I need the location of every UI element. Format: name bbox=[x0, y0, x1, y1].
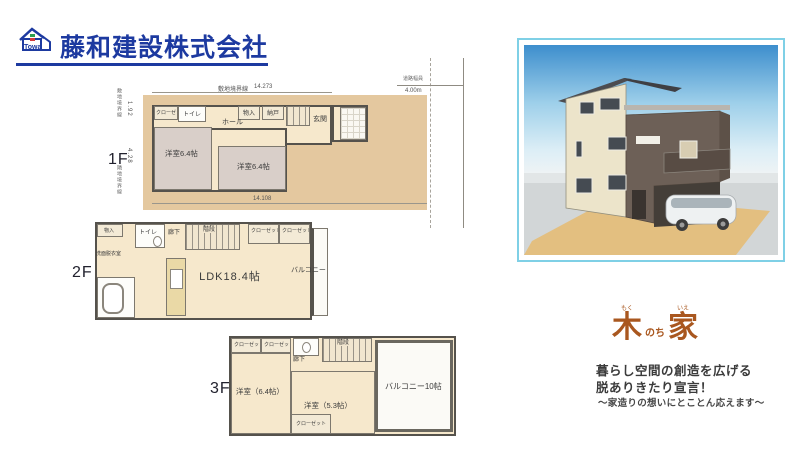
front-door bbox=[632, 190, 646, 219]
van-hub-rear bbox=[721, 222, 726, 227]
boundary-left-bottom: 隣地境界線 bbox=[116, 165, 121, 195]
brand-kanji-left: 木 bbox=[612, 311, 642, 344]
toilet-1f-label: トイレ bbox=[183, 112, 201, 118]
toilet-1f: トイレ bbox=[178, 106, 206, 122]
dim-bottom-line bbox=[152, 203, 427, 204]
balcony-2f-label: バルコニー bbox=[291, 267, 326, 274]
kitchen-counter bbox=[166, 258, 186, 316]
stairs-2f-label: 階段 bbox=[202, 227, 216, 233]
bathroom-2f bbox=[97, 277, 135, 318]
window-2f bbox=[608, 137, 626, 150]
van-windows bbox=[671, 198, 732, 208]
bedroom-3f-left-label: 洋室（6.4帖） bbox=[236, 388, 284, 396]
hall-label: ホール bbox=[222, 119, 243, 126]
exterior-render-frame bbox=[517, 38, 785, 262]
bedroom-1f-left: 洋室6.4帖 bbox=[154, 127, 212, 190]
hallway-2f-label: 廊下 bbox=[168, 230, 180, 236]
brand-kanji-right: 家 bbox=[668, 311, 698, 344]
floor-tag-2f: 2F bbox=[72, 264, 93, 282]
window-2f-slit bbox=[576, 141, 582, 157]
bedroom-3f-left: 洋室（6.4帖） bbox=[231, 353, 291, 434]
brand-middle-text: のち bbox=[645, 324, 665, 339]
brand-kanji-left-wrap: もく 木 bbox=[612, 306, 642, 343]
bedroom-1f-left-label: 洋室6.4帖 bbox=[165, 150, 198, 158]
stairs-3f-label: 階段 bbox=[336, 340, 350, 346]
dim-bottom-value: 14.108 bbox=[253, 196, 271, 202]
road-edge-line bbox=[463, 58, 464, 228]
window-3f-b bbox=[600, 98, 620, 110]
balcony-3f-label: バルコニー10帖 bbox=[385, 383, 442, 391]
storage-1f-b-label: 納戸 bbox=[267, 111, 279, 117]
floorplan-3f: バルコニー10帖 クローゼット クローゼット 階段 廊下 洋室（6.4帖） 洋室… bbox=[205, 330, 465, 445]
closet-3f-c: クローゼット bbox=[291, 414, 331, 434]
floorplan-1f: 道路幅員 4.00m クローゼット トイレ 物入 納戸 ホール 玄関 洋室6.4… bbox=[100, 55, 485, 235]
facade-brown-side bbox=[720, 111, 730, 182]
toilet-2f-label: トイレ bbox=[139, 230, 157, 236]
hallway-3f-label: 廊下 bbox=[293, 357, 305, 363]
window-brown-slit bbox=[636, 136, 660, 144]
boundary-left-top: 敷地境界線 bbox=[116, 88, 121, 118]
bathtub bbox=[102, 283, 124, 314]
storage-1f-a-label: 物入 bbox=[243, 111, 255, 117]
storage-2f-label: 物入 bbox=[104, 229, 114, 234]
floor-tag-1f: 1F bbox=[108, 151, 129, 169]
toilet-3f bbox=[293, 338, 319, 356]
road-dim-line bbox=[397, 85, 463, 86]
window-3f-a bbox=[580, 102, 594, 114]
brand-kanji-right-wrap: いえ 家 bbox=[668, 306, 698, 343]
storage-1f-b: 納戸 bbox=[262, 106, 284, 120]
slogan-line3: ～家造りの想いにとことん応えます～ bbox=[598, 395, 765, 409]
closet-2f-a-label: クローゼット bbox=[251, 229, 279, 234]
entrance-label: 玄関 bbox=[313, 116, 327, 123]
closet-3f-b: クローゼット bbox=[261, 338, 291, 353]
entrance-porch-tiles bbox=[340, 107, 366, 140]
closet-1f: クローゼット bbox=[154, 106, 178, 120]
bedroom-3f-mid-label: 洋室（5.3帖） bbox=[304, 402, 352, 410]
ldk-label: LDK18.4帖 bbox=[170, 272, 290, 283]
dim-left-top: 1.92 bbox=[126, 101, 132, 117]
closet-2f-b: クローゼット bbox=[279, 224, 310, 244]
company-logo-icon: Towa bbox=[16, 26, 56, 61]
closet-3f-b-label: クローゼット bbox=[264, 343, 291, 348]
exterior-render-image bbox=[524, 45, 778, 255]
bedroom-1f-right-label: 洋室6.4帖 bbox=[237, 163, 270, 171]
roof-right-slab bbox=[624, 78, 682, 92]
dim-top-line bbox=[152, 92, 332, 93]
brand-logo: もく 木 のち いえ 家 bbox=[612, 306, 698, 343]
closet-2f-b-label: クローゼット bbox=[282, 229, 310, 234]
stairs-1f bbox=[286, 106, 310, 126]
closet-3f-a-label: クローゼット bbox=[234, 343, 261, 348]
toilet-2f-icon bbox=[153, 236, 162, 247]
logo-towa-text: Towa bbox=[24, 44, 41, 51]
storage-1f-a: 物入 bbox=[238, 106, 260, 120]
slogan-line2: 脱ありきたり宣言！ bbox=[596, 377, 713, 396]
floor-tag-3f: 3F bbox=[210, 380, 231, 398]
storage-2f: 物入 bbox=[97, 224, 123, 237]
road-dim-label: 道路幅員 bbox=[403, 77, 423, 82]
closet-3f-a: クローゼット bbox=[231, 338, 261, 353]
window-1f-b bbox=[608, 175, 626, 190]
roof-balcony-rail bbox=[624, 105, 730, 110]
closet-1f-label: クローゼット bbox=[156, 111, 178, 116]
window-brown-square bbox=[680, 141, 697, 158]
toilet-2f: トイレ bbox=[135, 224, 165, 248]
flyer-page: Towa 藤和建設株式会社 道路幅員 4.00m クローゼット トイレ 物入 納… bbox=[0, 0, 800, 458]
washroom-label: 洗面脱衣室 bbox=[96, 252, 121, 257]
road-center-line bbox=[430, 58, 431, 228]
van-hub-front bbox=[680, 223, 685, 228]
window-1f-a bbox=[576, 178, 592, 193]
floorplan-2f: バルコニー 物入 トイレ 廊下 階段 クローゼット クローゼット 洗面脱衣室 L… bbox=[60, 210, 350, 335]
closet-3f-c-label: クローゼット bbox=[296, 422, 326, 427]
bedroom-1f-right: 洋室6.4帖 bbox=[218, 146, 286, 190]
closet-2f-a: クローゼット bbox=[248, 224, 279, 244]
toilet-3f-icon bbox=[302, 342, 311, 353]
road-dim-value: 4.00m bbox=[405, 88, 422, 94]
house-3d-illustration bbox=[524, 45, 778, 255]
